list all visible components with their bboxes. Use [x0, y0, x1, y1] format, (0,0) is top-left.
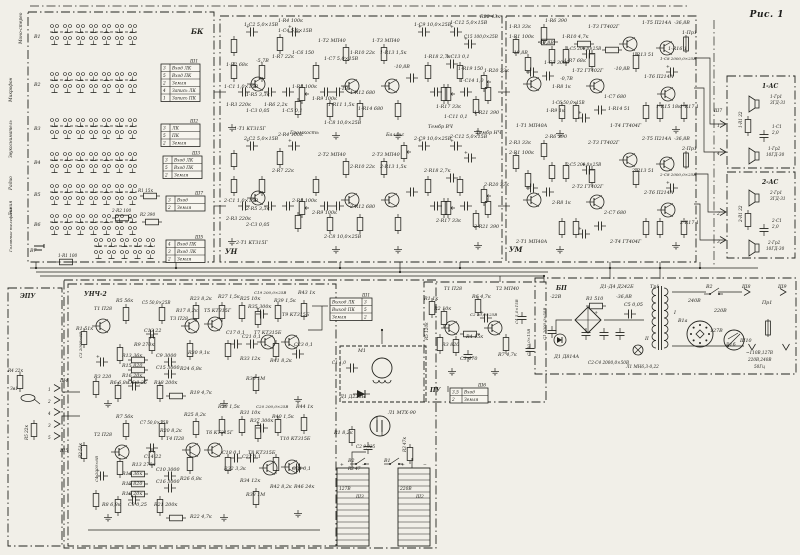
selector-pin: [699, 324, 701, 326]
component-label: 2-Т3 ГТ402Г: [587, 140, 620, 146]
component-label: Баланс: [385, 132, 404, 138]
component-label: R40 1,5к: [271, 414, 294, 420]
connector-pin: 2: [164, 173, 168, 178]
component-label: R28 1,5к: [217, 404, 240, 410]
connector-signal: Вход: [176, 198, 188, 203]
component-label: Л1 МН6,3-0,22: [625, 364, 659, 369]
connector-pin: 5: [163, 134, 166, 139]
component-label: 1-R17 1: [680, 104, 699, 110]
component-label: Д1 Д814А: [553, 354, 580, 360]
component-label: R34 12к: [239, 478, 260, 484]
component-label: R25 10к: [239, 296, 260, 302]
component-label: -36,8В: [674, 136, 690, 142]
component-label: R1 51к: [75, 326, 93, 332]
component-label: В2: [347, 458, 355, 464]
component-label: С15 3000: [156, 365, 180, 371]
component-label: 1-С6 150: [292, 50, 314, 56]
component-label: Моно-стерео: [19, 12, 24, 45]
component-label: R33 12к: [239, 356, 260, 362]
component-label: 3: [717, 240, 720, 245]
component-label: 1-R11 1,5к: [328, 102, 355, 108]
component-label: 1-R5 3,3к: [246, 92, 269, 98]
component-label: 220В,240В: [747, 357, 771, 362]
component-label: Ш5: [59, 448, 68, 454]
component-label: 1-Т1 КТ315Г: [234, 126, 267, 132]
component-label: 2-R10 22к: [349, 164, 375, 170]
component-label: R38 1М: [245, 492, 266, 498]
connector-signal: ЛК: [171, 126, 180, 131]
polarity-mark: +: [666, 64, 670, 70]
connector-pin: 3: [163, 126, 166, 131]
component-label: Тр1: [650, 284, 659, 290]
component-label: 2-С9 10,0×25В: [413, 136, 452, 142]
component-label: R39 1,5к: [273, 298, 296, 304]
component-label: Ш8: [741, 284, 751, 290]
component-label: БК: [190, 27, 204, 36]
connector-pin: 4: [167, 242, 171, 247]
component-label: 1-R20 33к: [484, 68, 509, 74]
component-label: Т9 КТ315Б: [282, 312, 310, 318]
component-label: 2,0: [771, 224, 779, 229]
component-label: С20 200,0×25В: [256, 404, 288, 409]
component-label: 1-R10 4,7к: [562, 34, 589, 40]
connector-pin: 4: [162, 89, 166, 94]
component-label: R5 56к: [115, 298, 133, 304]
component-label: R35 300к: [247, 304, 271, 310]
component-label: 220В: [713, 308, 727, 314]
component-label: 2-R2 100: [111, 208, 132, 213]
junction-dot: [659, 267, 661, 269]
component-label: С5 50,0×25В: [142, 300, 170, 305]
polarity-mark: +: [288, 138, 292, 144]
junction-dot: [175, 267, 177, 269]
connector-pin: 2: [451, 398, 455, 403]
component-label: 1-R2 68к: [226, 62, 248, 68]
schematic-canvas: 3Вход ЛК5Вход ПК2Земля4Запись ЛК1Запись …: [0, 0, 800, 555]
component-label: 10ГД-30: [766, 246, 785, 251]
component-label: УН: [225, 247, 238, 256]
component-label: R2 47: [347, 466, 361, 471]
component-label: 1-R13 1,5к: [380, 50, 407, 56]
connector-signal: Земля: [177, 257, 192, 262]
component-label: ~110В,127В: [746, 350, 773, 355]
component-label: 1-R16 1: [668, 46, 687, 52]
component-label: 1-С12 5,0×15В: [450, 20, 488, 26]
component-label: С16 3000: [156, 479, 180, 485]
switch-contact: [718, 293, 720, 295]
component-label: 2-R4 100к: [277, 132, 303, 138]
component-label: Т2 МП40: [496, 286, 519, 292]
component-label: В5: [33, 192, 41, 198]
component-label: 1-R1 22: [738, 111, 743, 128]
component-label: Пр1: [761, 300, 772, 306]
component-label: -36,8В: [674, 20, 690, 26]
component-label: R18 200к: [153, 380, 177, 386]
component-label: 1-R7 22к: [272, 54, 294, 60]
component-label: 2-R12 680: [349, 204, 375, 210]
component-label: -36,8В: [616, 294, 632, 300]
component-label: М1: [357, 348, 366, 354]
component-label: С2-С4 2000,0×50В: [588, 360, 629, 365]
component-label: R43 1к: [297, 290, 315, 296]
component-label: 1-R8 100к: [292, 84, 317, 90]
component-label: 1-Т6 П214А: [644, 74, 674, 80]
component-label: 2-R8 1к: [551, 200, 571, 206]
component-label: R2 390: [139, 212, 155, 217]
component-label: 2-R5 3,3к: [245, 206, 269, 212]
component-label: R7 4,7к: [497, 352, 517, 358]
component-label: 2-Т1 КТ315Г: [235, 240, 269, 246]
component-label: 1-Т2 МП40: [318, 38, 346, 44]
component-label: 2-R3 33к: [508, 140, 531, 146]
component-label: 1-С7 5,0×15В: [324, 56, 359, 62]
component-label: 2-R1 22: [738, 205, 743, 223]
component-label: 10ГД-30: [766, 152, 785, 157]
component-label: Ш9: [777, 284, 787, 290]
component-label: 1-С1 1,0×15В: [224, 84, 259, 90]
polarity-mark: +: [594, 310, 598, 316]
connector-pin: 2: [162, 81, 166, 86]
component-label: R22 4,7к: [189, 514, 212, 520]
component-label: Т10 КТ315Б: [280, 436, 311, 442]
connector-signal: Земля: [172, 81, 187, 86]
component-label: 2-Гр1: [769, 190, 782, 195]
component-label: 2-Т3 МП40: [371, 152, 400, 158]
connector-pin: 1: [163, 96, 166, 101]
component-label: 127В: [339, 487, 351, 492]
component-label: Ш3: [355, 495, 364, 500]
component-label: 2-R17 1: [679, 220, 699, 226]
component-label: С23 0,1: [294, 342, 313, 348]
connector-title: Ш7: [194, 191, 203, 197]
component-label: 1-С14 1,0: [460, 78, 484, 84]
polarity-mark: −: [423, 463, 427, 468]
component-label: С2 50,0×25В: [470, 312, 497, 317]
component-label: R16 20к: [121, 491, 142, 497]
junction-dot: [459, 267, 461, 269]
component-label: 2-R18 2,7к: [423, 168, 451, 174]
polarity-mark: +: [340, 462, 344, 468]
component-label: 2-R9 100к: [311, 210, 337, 216]
junction-dot: [339, 267, 341, 269]
component-label: Ш2: [415, 495, 424, 500]
figure-caption: Рис. 1: [750, 10, 784, 20]
component-label: В7: [29, 248, 38, 254]
component-label: R44 1к: [295, 404, 313, 410]
component-label: 1-С7 680: [604, 94, 626, 100]
component-label: 1-R3 220к: [226, 102, 251, 108]
component-label: R23 8,2к: [189, 296, 212, 302]
component-label: 2-С3 0,05: [245, 222, 270, 228]
component-label: 3ГД-31: [770, 100, 786, 105]
component-label: 1-R19 150: [458, 66, 483, 72]
component-label: R1 1к: [423, 296, 438, 302]
component-label: Звукосниматель: [8, 120, 13, 158]
connector-signal: Земля: [174, 173, 189, 178]
component-label: С14 22: [144, 454, 161, 460]
scanned-schematic-page: 3Вход ЛК5Вход ПК2Земля4Запись ЛК1Запись …: [0, 0, 800, 555]
component-label: В1а: [677, 318, 688, 324]
component-label: С4 2000×6В: [94, 456, 99, 482]
connector-signal: 3: [364, 300, 367, 305]
connector-pin: 3: [168, 250, 171, 255]
component-label: R13 36к: [121, 353, 142, 359]
component-label: R13 270к: [131, 462, 155, 468]
component-label: 1-Т2 ГТ402Г: [572, 68, 604, 74]
component-label: 2-R21 390: [473, 224, 499, 230]
component-label: R3 47к: [402, 437, 407, 453]
component-label: 2-R6 390: [544, 134, 567, 140]
component-label: 1: [48, 387, 51, 392]
connector-title: Ш6: [477, 383, 486, 389]
polarity-mark: +: [666, 180, 670, 186]
component-label: -10,8В: [538, 40, 554, 46]
component-label: 2-АС: [761, 179, 779, 186]
component-label: С21 0,1: [242, 334, 261, 340]
paper-background: [0, 0, 800, 555]
connector-pin: 3: [168, 198, 171, 203]
component-label: R15 820: [121, 363, 142, 369]
component-label: 2-С8 2000,0×25В: [659, 172, 696, 177]
component-label: R1 8,2к: [333, 430, 353, 436]
component-label: R6 6,8к: [109, 380, 129, 386]
component-label: 2-R13 51: [631, 168, 654, 174]
component-label: 2-Т2 МП40: [317, 152, 346, 158]
selector-pin: [705, 339, 707, 341]
junction-dot: [381, 329, 383, 331]
connector-pin: 3: [165, 158, 168, 163]
component-label: 1-С5 200,0×25В: [566, 46, 601, 51]
polarity-mark: +: [401, 462, 405, 468]
connector-signal: ПК: [171, 134, 180, 139]
component-label: 1-R1 100к: [509, 34, 534, 40]
connector-signal: Вход ПК: [176, 242, 197, 247]
component-label: 4: [47, 411, 51, 416]
component-label: -1В: [340, 86, 349, 92]
component-label: I: [673, 310, 676, 316]
component-label: С24 0,1: [292, 466, 311, 472]
selector-pin: [693, 339, 695, 341]
component-label: 1-R10 22к: [350, 50, 375, 56]
component-label: Т5 КТ315Г: [204, 308, 232, 314]
component-label: 1-С8 10,0×25В: [324, 120, 362, 126]
component-label: С18 0,1: [222, 450, 241, 456]
component-label: 1-R12 680: [350, 90, 375, 96]
component-label: 1-R15 18к: [656, 104, 681, 110]
selector-pin: [690, 333, 692, 335]
connector-pin: Выход ЛК: [331, 300, 355, 305]
component-label: 1-АС: [762, 83, 779, 90]
component-label: 2-С8 10,0×25В: [323, 234, 362, 240]
component-label: R21 200к: [153, 502, 177, 508]
connector-pin: 3,5: [452, 390, 459, 395]
selector-pin: [705, 327, 707, 329]
component-label: 1-С11 0,1: [444, 114, 468, 120]
connector-pin: 5: [163, 74, 166, 79]
connector-title: Ш1: [189, 59, 198, 65]
component-label: R4 15к: [465, 334, 483, 340]
component-label: Т6 КТ315Г: [206, 430, 234, 436]
polarity-mark: +: [96, 354, 100, 360]
component-label: R5 22к: [24, 425, 29, 441]
component-label: ПУ: [429, 387, 442, 394]
component-label: 1-Т4 ГТ404Г: [610, 123, 642, 129]
component-label: С4 5,0×15В: [514, 299, 519, 324]
component-label: R32 3,3к: [223, 466, 246, 472]
component-label: Д1-Д4 Д242Б: [599, 284, 634, 290]
component-label: УМ: [509, 245, 523, 254]
component-label: С1 2000,0×50В: [542, 308, 547, 340]
component-label: 240В: [687, 298, 701, 304]
component-label: 4: [716, 152, 720, 157]
polarity-mark: +: [578, 226, 582, 232]
connector-pin: Земля: [332, 315, 347, 320]
component-label: С3 470: [460, 356, 477, 362]
component-label: С13 22: [144, 328, 161, 334]
component-label: Головные телефоны: [8, 208, 13, 253]
component-label: 2-R13 1,5к: [379, 164, 407, 170]
junction-dot: [35, 267, 37, 269]
connector-title: Ш3: [191, 151, 200, 157]
connector-signal: Земля: [177, 206, 192, 211]
polarity-mark: +: [464, 150, 468, 156]
component-label: 2-R3 220к: [225, 216, 251, 222]
component-label: R17 8,2к: [175, 308, 198, 314]
connector-signal: Вход: [463, 390, 475, 395]
component-label: 1-R6 390: [545, 18, 567, 24]
component-label: 50Гц: [754, 364, 765, 369]
component-label: 1-R1 100: [58, 253, 78, 258]
component-label: 1-С8 2000,0×25В: [660, 56, 696, 61]
component-label: R19 4,7к: [189, 390, 212, 396]
connector-pin: 5: [165, 166, 168, 171]
connector-signal: Запись ЛК: [172, 89, 196, 94]
component-label: -0,7В: [560, 76, 573, 82]
switch-contact: [355, 463, 357, 465]
component-label: 1-R4 100к: [278, 18, 303, 24]
component-label: 2-С1: [771, 218, 782, 223]
component-label: -5,7В: [256, 58, 269, 64]
component-label: 1-Т3 ГТ402Г: [588, 24, 620, 30]
component-label: 1-R21 390: [474, 110, 499, 116]
component-label: Т1 П28: [444, 286, 462, 292]
component-label: 1-С9 10,0×25В: [414, 22, 452, 28]
component-label: С19 200,0×25В: [254, 290, 286, 295]
component-label: R15 820: [121, 481, 142, 487]
component-label: 2-Пр1: [681, 146, 697, 152]
connector-signal: Земля: [464, 398, 479, 403]
component-label: Ш4: [59, 378, 68, 384]
selector-pin: [693, 327, 695, 329]
component-label: Т1 П28: [94, 306, 112, 312]
component-label: R42 8,2к: [269, 484, 292, 490]
component-label: 2-С5 200,0×25В: [565, 162, 601, 167]
component-label: 1-R17 33к: [436, 104, 461, 110]
component-label: -10,8В: [394, 64, 410, 70]
connector-signal: Вход ЛК: [173, 158, 194, 163]
junction-dot: [609, 267, 611, 269]
component-label: R2 51к: [78, 443, 83, 459]
component-label: Зв1: [10, 387, 18, 392]
component-label: R9 270к: [133, 342, 154, 348]
component-label: R1 510: [585, 296, 603, 302]
component-label: II: [644, 336, 649, 342]
component-label: 1-С4 5,0×15В: [278, 28, 313, 34]
component-label: 5: [48, 435, 51, 440]
component-label: 1-Т5 П214А: [642, 20, 672, 26]
component-label: 1-Гр2: [768, 146, 781, 151]
component-label: -22В: [550, 294, 562, 300]
component-label: R5 120к: [424, 322, 429, 341]
component-label: R6 4,7к: [471, 294, 491, 300]
component-label: Л1 МТХ-90: [387, 410, 416, 416]
component-label: R3 220: [93, 374, 111, 380]
component-label: Т2 П28: [94, 432, 112, 438]
component-label: 1-R8 1к: [552, 84, 571, 90]
connector-signal: Вход ПК: [173, 166, 194, 171]
component-label: R26 6,8к: [179, 476, 202, 482]
component-label: 1-Т1 МП40А: [516, 123, 548, 129]
component-label: В2: [705, 284, 713, 290]
component-label: 2-R17 33к: [435, 218, 461, 224]
component-label: -18,8В: [512, 50, 528, 56]
component-label: 2-Гр2: [767, 240, 781, 245]
component-label: ЭПУ: [20, 293, 36, 300]
component-label: 2-R8 100к: [291, 198, 317, 204]
component-label: 1-R14 680: [358, 106, 383, 112]
component-label: 1-С1: [772, 124, 782, 129]
component-label: R46 24к: [293, 484, 314, 490]
component-label: 1-R3 33к: [509, 24, 531, 30]
connector-pin: 2: [167, 257, 171, 262]
component-label: 2-Т2 ГТ402Г: [571, 184, 604, 190]
component-label: 1-R9 100к: [312, 96, 337, 102]
junction-dot: [543, 275, 545, 277]
component-label: 2: [47, 399, 51, 404]
component-label: 1-Т3 МП40: [372, 38, 400, 44]
component-label: Ш10: [739, 338, 752, 344]
component-label: 127В: [710, 328, 723, 334]
component-label: С5 50,0×15В: [526, 329, 531, 356]
selector-pin: [699, 342, 701, 344]
component-label: 1: [717, 124, 720, 129]
component-label: В6: [33, 222, 41, 228]
component-label: 1-R6 2,2к: [264, 102, 287, 108]
component-label: В1: [383, 458, 391, 464]
component-label: 1-С5 0,1: [282, 108, 303, 114]
component-label: 2-Т6 П214А: [643, 190, 674, 196]
component-label: R27 1,5к: [217, 294, 240, 300]
component-label: R7 56к: [115, 414, 133, 420]
component-label: В1: [33, 34, 41, 40]
component-label: С6 0,25: [128, 380, 147, 386]
component-label: С15 100,0×25В: [464, 34, 498, 39]
component-label: Т3 П28: [170, 316, 188, 322]
connector-title: Ш2: [189, 119, 198, 125]
component-label: С1 1,0: [332, 360, 346, 365]
connector-signal: 5: [364, 308, 367, 313]
component-label: 1-Пр1: [682, 30, 697, 36]
component-label: 2-С7 680: [603, 210, 626, 216]
junction-dot: [399, 271, 401, 273]
component-label: Т4 П28: [166, 436, 184, 442]
component-label: R4 22к: [7, 368, 23, 373]
connector-signal: Земля: [172, 141, 187, 146]
connector-signal: Вход ПК: [171, 74, 192, 79]
polarity-mark: +: [578, 110, 582, 116]
connector-signal: 2: [363, 315, 367, 320]
component-label: 2-Т5 П214А: [641, 136, 672, 142]
